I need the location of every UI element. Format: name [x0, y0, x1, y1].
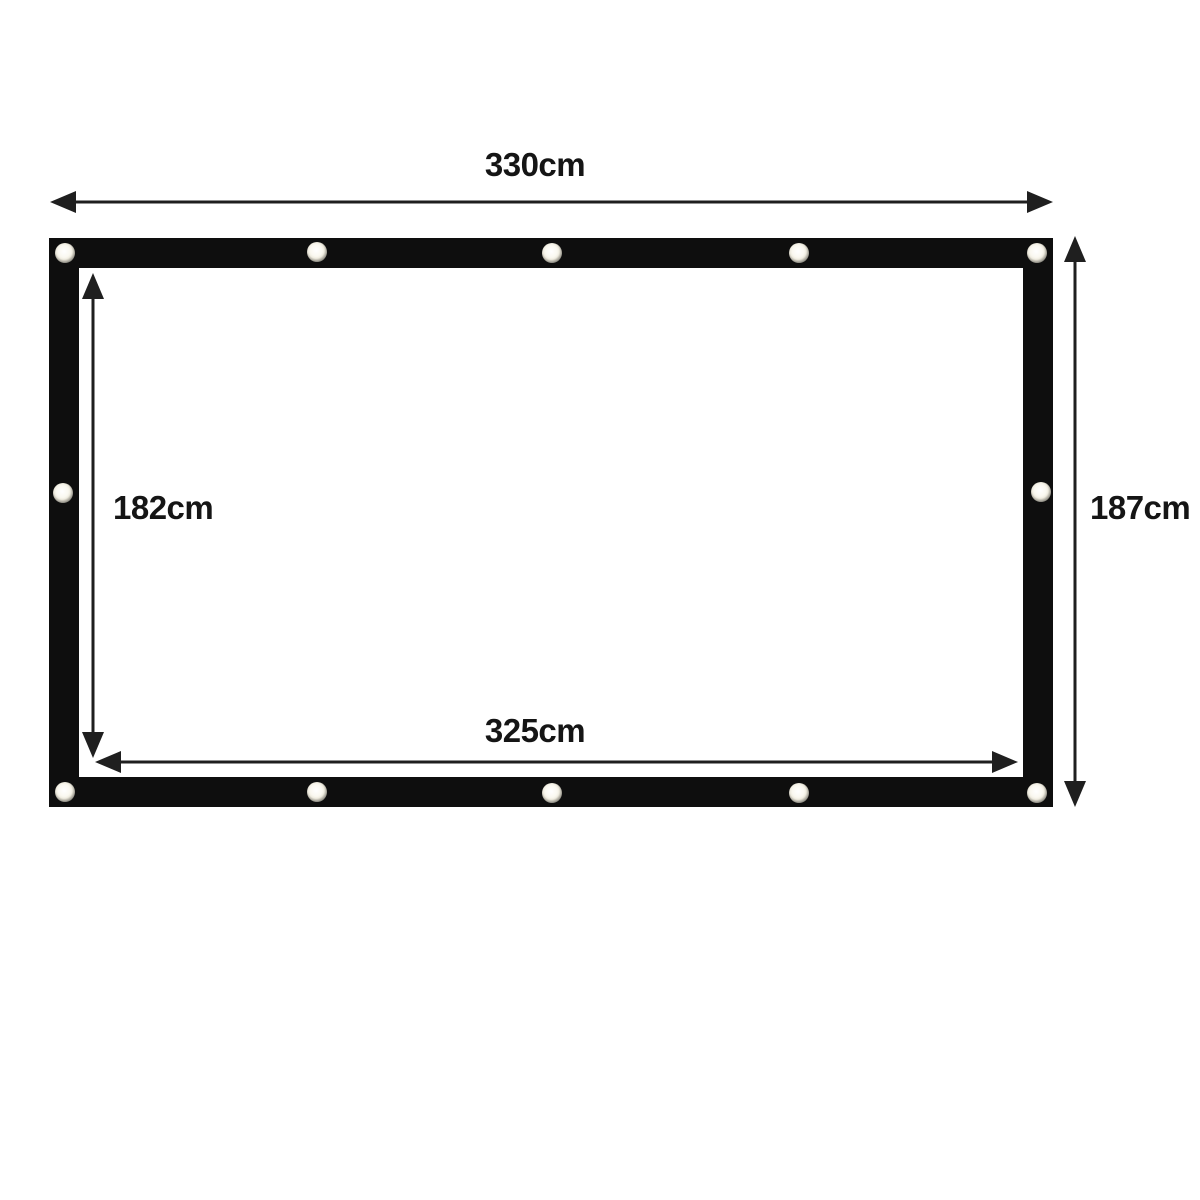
- grommet-icon: [307, 782, 327, 802]
- grommet-icon: [1027, 243, 1047, 263]
- inner-width-label: 325cm: [385, 714, 685, 747]
- outer-width-label: 330cm: [385, 148, 685, 181]
- grommet-icon: [542, 243, 562, 263]
- inner-height-label: 182cm: [113, 491, 213, 524]
- outer-width-arrow: [50, 189, 1053, 215]
- grommet-icon: [53, 483, 73, 503]
- grommet-icon: [307, 242, 327, 262]
- grommet-icon: [789, 783, 809, 803]
- outer-height-label: 187cm: [1090, 491, 1190, 524]
- grommet-icon: [1031, 482, 1051, 502]
- outer-height-arrow: [1062, 236, 1088, 807]
- grommet-icon: [1027, 783, 1047, 803]
- inner-height-arrow: [80, 273, 106, 758]
- grommet-icon: [542, 783, 562, 803]
- dimension-diagram: 330cm 182cm 325cm 187cm: [0, 0, 1200, 1200]
- grommet-icon: [55, 782, 75, 802]
- grommet-icon: [55, 243, 75, 263]
- inner-width-arrow: [95, 749, 1018, 775]
- grommet-icon: [789, 243, 809, 263]
